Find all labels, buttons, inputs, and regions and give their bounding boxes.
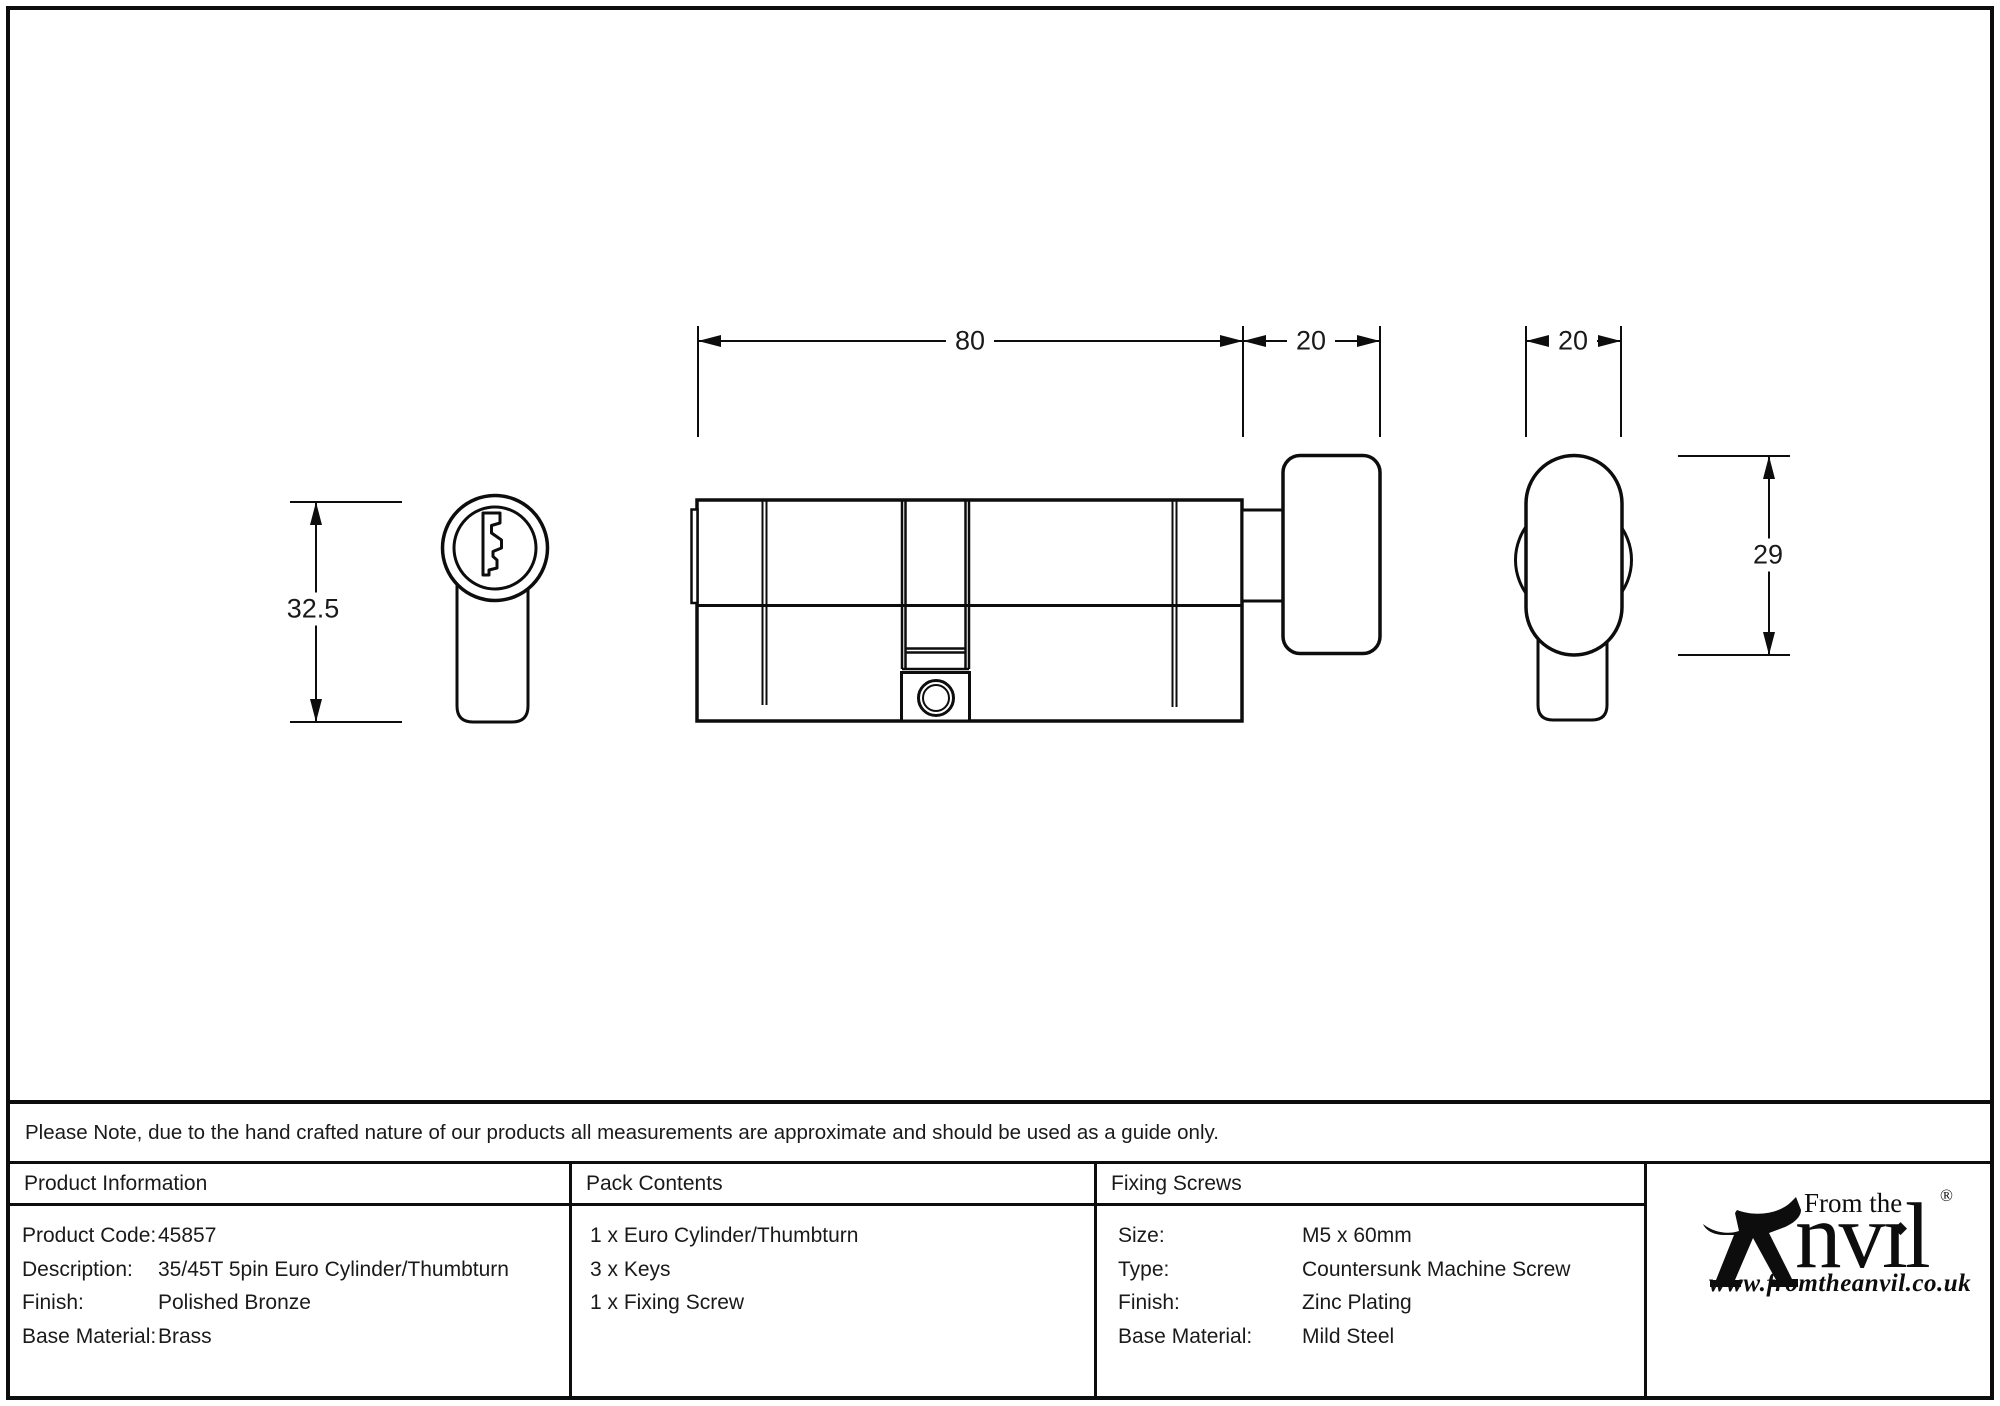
pack-contents-header: Pack Contents xyxy=(572,1164,1094,1206)
dim-label-thumbturn-height: 29 xyxy=(1744,539,1792,572)
row-label: Description: xyxy=(22,1253,158,1287)
product-information-header: Product Information xyxy=(10,1164,569,1206)
table-row: Description: 35/45T 5pin Euro Cylinder/T… xyxy=(22,1253,563,1287)
row-value: Countersunk Machine Screw xyxy=(1302,1253,1638,1287)
registered-mark: ® xyxy=(1940,1186,1953,1206)
product-information-body: Product Code: 45857 Description: 35/45T … xyxy=(10,1206,569,1396)
pack-contents-column: Pack Contents 1 x Euro Cylinder/Thumbtur… xyxy=(572,1164,1097,1396)
dim-label-face-height: 32.5 xyxy=(278,593,349,626)
technical-drawing xyxy=(10,10,1990,1100)
row-label: Product Code: xyxy=(22,1219,158,1253)
table-row: Base Material: Mild Steel xyxy=(1118,1320,1638,1354)
row-label: Type: xyxy=(1118,1253,1302,1287)
row-value: Mild Steel xyxy=(1302,1320,1638,1354)
sheet-border: 80 20 20 32.5 29 Please Note, due to the… xyxy=(6,6,1994,1400)
thumbturn-side xyxy=(1283,456,1380,654)
dim-label-body-length: 80 xyxy=(946,325,994,358)
list-item: 3 x Keys xyxy=(590,1253,1088,1287)
table-row: Finish: Polished Bronze xyxy=(22,1286,563,1320)
end-view xyxy=(1516,456,1632,721)
fixing-screws-header: Fixing Screws xyxy=(1097,1164,1644,1206)
dim-label-neck-thumbturn: 20 xyxy=(1287,325,1335,358)
side-view xyxy=(692,456,1381,722)
table-row: Product Code: 45857 xyxy=(22,1219,563,1253)
measurement-note-row: Please Note, due to the hand crafted nat… xyxy=(10,1104,1990,1164)
brand-url: www.fromtheanvil.co.uk xyxy=(1709,1270,1971,1298)
row-label: Size: xyxy=(1118,1219,1302,1253)
diamond-icon: ◆ xyxy=(1894,1218,1907,1238)
list-item: 1 x Euro Cylinder/Thumbturn xyxy=(590,1219,1088,1253)
table-row: Size: M5 x 60mm xyxy=(1118,1219,1638,1253)
technical-drawing-area: 80 20 20 32.5 29 xyxy=(10,10,1990,1104)
row-label: Finish: xyxy=(22,1286,158,1320)
list-item: 1 x Fixing Screw xyxy=(590,1286,1088,1320)
thumbturn-end xyxy=(1526,456,1622,656)
row-value: M5 x 60mm xyxy=(1302,1219,1638,1253)
table-row: Base Material: Brass xyxy=(22,1320,563,1354)
row-value: Zinc Plating xyxy=(1302,1286,1638,1320)
row-label: Finish: xyxy=(1118,1286,1302,1320)
row-value: 35/45T 5pin Euro Cylinder/Thumbturn xyxy=(158,1253,563,1287)
row-label: Base Material: xyxy=(1118,1320,1302,1354)
dim-label-thumbturn-width: 20 xyxy=(1549,325,1597,358)
row-label: Base Material: xyxy=(22,1320,158,1354)
from-the-anvil-logo: From the nvıl ◆ ® www.fromtheanvil.co.uk xyxy=(1697,1186,1959,1318)
product-information-column: Product Information Product Code: 45857 … xyxy=(10,1164,572,1396)
table-row: Finish: Zinc Plating xyxy=(1118,1286,1638,1320)
fixing-screws-column: Fixing Screws Size: M5 x 60mm Type: Coun… xyxy=(1097,1164,1647,1396)
face-view xyxy=(443,496,548,723)
product-info-table: Product Information Product Code: 45857 … xyxy=(10,1164,1990,1396)
pack-contents-body: 1 x Euro Cylinder/Thumbturn 3 x Keys 1 x… xyxy=(572,1206,1094,1396)
product-drawing-sheet: 80 20 20 32.5 29 Please Note, due to the… xyxy=(0,0,2000,1406)
brand-cell: From the nvıl ◆ ® www.fromtheanvil.co.uk xyxy=(1647,1164,1990,1396)
row-value: Polished Bronze xyxy=(158,1286,563,1320)
fixing-screws-body: Size: M5 x 60mm Type: Countersunk Machin… xyxy=(1097,1206,1644,1396)
measurement-note: Please Note, due to the hand crafted nat… xyxy=(25,1121,1219,1145)
table-row: Type: Countersunk Machine Screw xyxy=(1118,1253,1638,1287)
row-value: Brass xyxy=(158,1320,563,1354)
row-value: 45857 xyxy=(158,1219,563,1253)
